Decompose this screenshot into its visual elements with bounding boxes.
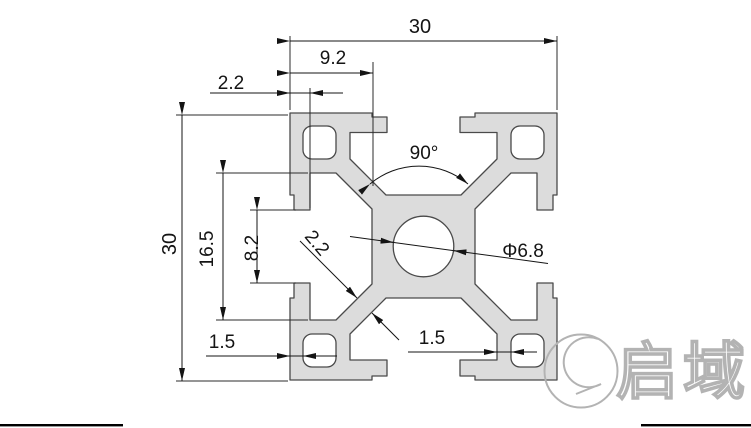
dim-arc-slot-angle <box>370 166 468 184</box>
drawing-sheet: 30 9.2 2.2 90° Φ6.8 2.2 30 16.5 8.2 1.5 … <box>0 0 751 428</box>
logo-inner-swoosh <box>564 337 601 394</box>
label-slot-opening: 8.2 <box>242 235 263 261</box>
label-corner-wall-left: 1.5 <box>209 332 235 353</box>
label-center-hole: Φ6.8 <box>502 241 544 262</box>
label-overall-height: 30 <box>159 233 181 255</box>
label-cavity-width: 16.5 <box>197 231 218 268</box>
technical-drawing: 30 9.2 2.2 90° Φ6.8 2.2 30 16.5 8.2 1.5 … <box>0 0 751 428</box>
label-overall-width: 30 <box>409 16 431 38</box>
brand-watermark: 启域 <box>545 335 751 408</box>
label-lip-wall: 2.2 <box>218 73 244 94</box>
label-slot-offset: 9.2 <box>320 48 346 69</box>
label-web-thickness: 2.2 <box>300 226 333 260</box>
label-corner-wall-bottom: 1.5 <box>419 328 445 349</box>
sheet-border-line-right <box>641 424 751 426</box>
sheet-border-line-left <box>0 424 123 426</box>
brand-name-text: 启域 <box>616 338 750 407</box>
dim-arrow-web-lower <box>372 313 399 340</box>
label-slot-angle: 90° <box>410 143 439 164</box>
